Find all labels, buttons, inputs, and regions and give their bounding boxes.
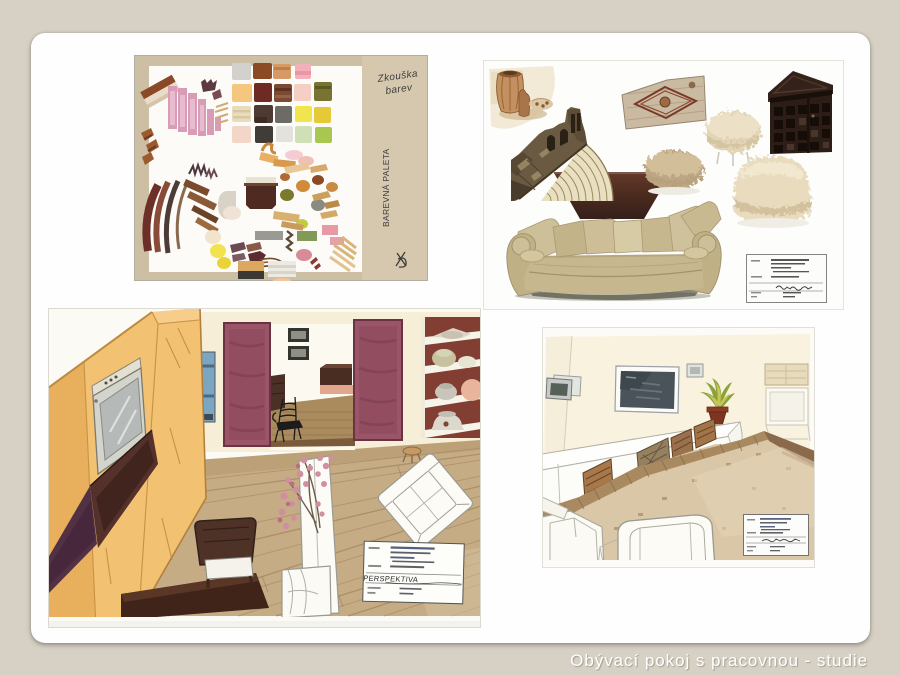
svg-text:BAREVNÁ PALETA: BAREVNÁ PALETA [381, 148, 391, 227]
